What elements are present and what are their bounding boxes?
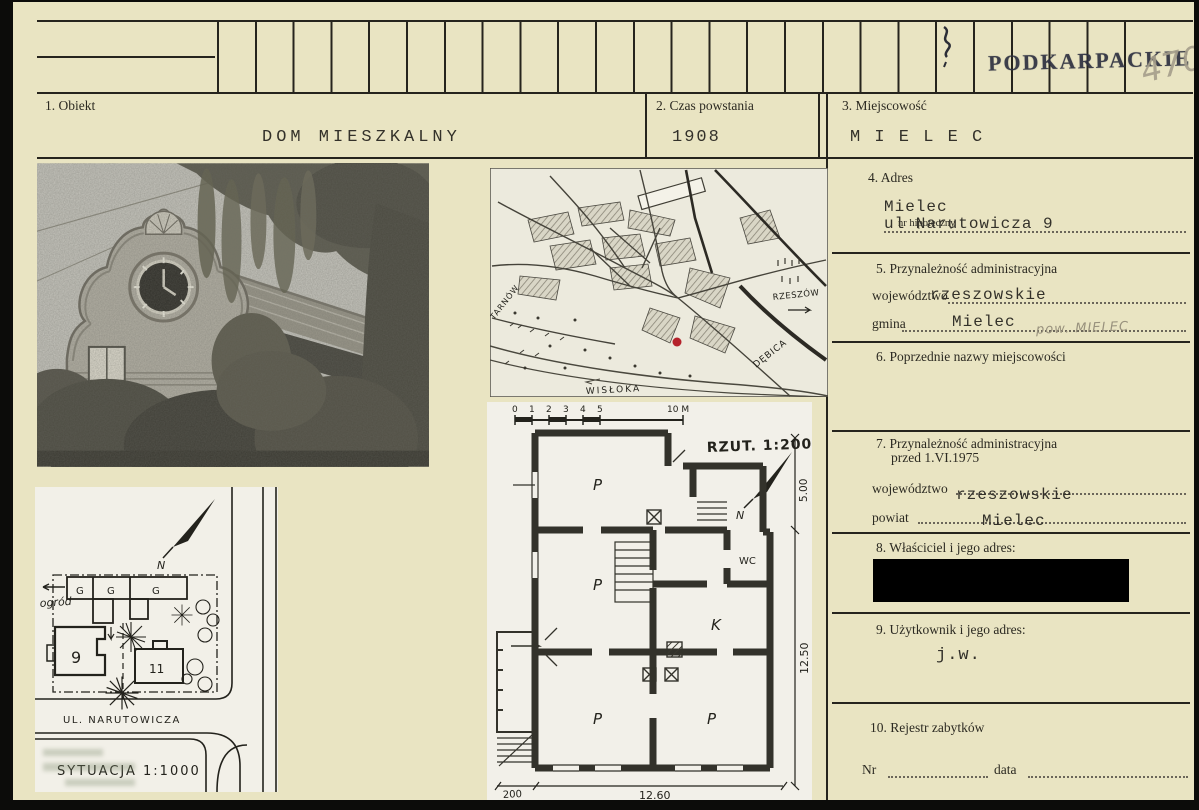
field-powiat-label: powiat — [872, 510, 909, 526]
scan-edge-top — [0, 0, 1199, 2]
field-poprzednie-label: 6. Poprzednie nazwy miejscowości — [876, 349, 1066, 365]
plan-dim-500: 5.00 — [798, 479, 810, 502]
plan-scale-1: 1 — [529, 405, 535, 415]
field-gmina-value: Mielec — [952, 313, 1016, 331]
field-adres-line2: ul Narutowicza 9 — [884, 215, 1054, 233]
field-rejestr-label: 10. Rejestr zabytków — [870, 720, 984, 736]
plan-room-p4: P — [707, 710, 717, 728]
site-north-label: N — [157, 559, 165, 572]
plan-scale-2: 2 — [546, 405, 552, 415]
map-location-marker — [673, 338, 682, 347]
divider — [832, 532, 1190, 534]
site-house-9-label: 9 — [71, 648, 81, 667]
scan-edge-left — [0, 0, 13, 810]
plan-scale-4: 4 — [580, 405, 586, 415]
plan-scale-3: 3 — [563, 405, 569, 415]
field-rejestr-data-label: data — [994, 762, 1017, 778]
plan-scale-end: 10 M — [667, 405, 689, 415]
field-obiekt-label: 1. Obiekt — [45, 98, 95, 114]
site-house-11-label: 11 — [149, 662, 164, 676]
field-powiat-value: Mielec — [982, 512, 1046, 530]
plan-room-p1: P — [593, 476, 603, 494]
plan-scale-0: 0 — [512, 405, 518, 415]
record-card-scan: PODKARPACKIE 4708 1. Obiekt DOM MIESZKAL… — [0, 0, 1199, 810]
site-garage-2: G — [107, 586, 115, 597]
divider — [832, 252, 1190, 254]
plan-dim-200: 200 — [503, 789, 523, 800]
plan-room-wc: WC — [739, 556, 756, 567]
site-street-label: UL. NARUTOWICZA — [63, 715, 181, 726]
scan-edge-right — [1194, 0, 1199, 810]
field-adres-line1: Mielec — [884, 198, 948, 216]
field-miejscowosc-value: M I E L E C — [850, 128, 984, 147]
divider — [832, 430, 1190, 432]
divider — [818, 92, 820, 157]
field-adres-label: 4. Adres — [868, 170, 913, 186]
site-sheet — [35, 487, 278, 792]
plan-scale-5: 5 — [597, 405, 603, 415]
plan-room-p2: P — [593, 576, 603, 594]
field-admin-label: 5. Przynależność administracyjna — [876, 261, 1057, 277]
ink-scribble — [936, 24, 958, 68]
redaction-bar — [873, 559, 1129, 602]
field-rejestr-nr-label: Nr — [862, 762, 876, 778]
field-obiekt-value: DOM MIESZKALNY — [262, 128, 461, 147]
field-czas-label: 2. Czas powstania — [656, 98, 754, 114]
dotted-line — [918, 512, 1186, 524]
plan-room-p3: P — [593, 710, 603, 728]
divider — [645, 92, 647, 157]
floor-plan: 0 1 2 3 4 5 10 M RZUT. 1:200 N 5.00 12.5… — [487, 402, 812, 805]
divider — [832, 341, 1190, 343]
field-admin1975-label2: przed 1.VI.1975 — [891, 450, 979, 466]
divider — [832, 702, 1190, 704]
header-short-line — [37, 56, 215, 58]
town-map: TARNÓW RZESZÓW DĘBICA WISŁOKA — [490, 168, 828, 402]
divider — [832, 612, 1190, 614]
field-czas-value: 1908 — [672, 128, 721, 147]
field-uzytkownik-value: j.w. — [936, 646, 981, 665]
field-miejscowosc-label: 3. Miejscowość — [842, 98, 927, 114]
divider — [37, 157, 1193, 159]
field-wojewodztwo1975-label: województwo — [872, 481, 948, 497]
site-garden-label: ogród — [39, 595, 73, 610]
photo-grain — [37, 163, 429, 466]
dotted-line — [888, 766, 988, 778]
house-photograph — [37, 163, 429, 472]
site-plan: N G G G ogród 9 11 — [35, 487, 278, 797]
field-wojewodztwo-value: rzeszowskie — [930, 286, 1047, 304]
header-bottom-line — [37, 92, 1193, 94]
site-garage-1: G — [76, 586, 84, 597]
scan-edge-bottom — [0, 800, 1199, 810]
plan-room-k: K — [711, 616, 722, 634]
site-garage-3: G — [152, 586, 160, 597]
field-uzytkownik-label: 9. Użytkownik i jego adres: — [876, 622, 1026, 638]
dotted-line — [1028, 766, 1188, 778]
plan-north-label: N — [736, 509, 744, 522]
plan-dim-1250: 12.50 — [798, 643, 811, 675]
plan-dim-1260: 12.60 — [639, 789, 671, 800]
field-gmina-label: gmina — [872, 316, 906, 332]
field-wlasciciel-label: 8. Właściciel i jego adres: — [876, 540, 1016, 556]
field-wojewodztwo1975-value: rzeszowskie — [956, 486, 1073, 504]
